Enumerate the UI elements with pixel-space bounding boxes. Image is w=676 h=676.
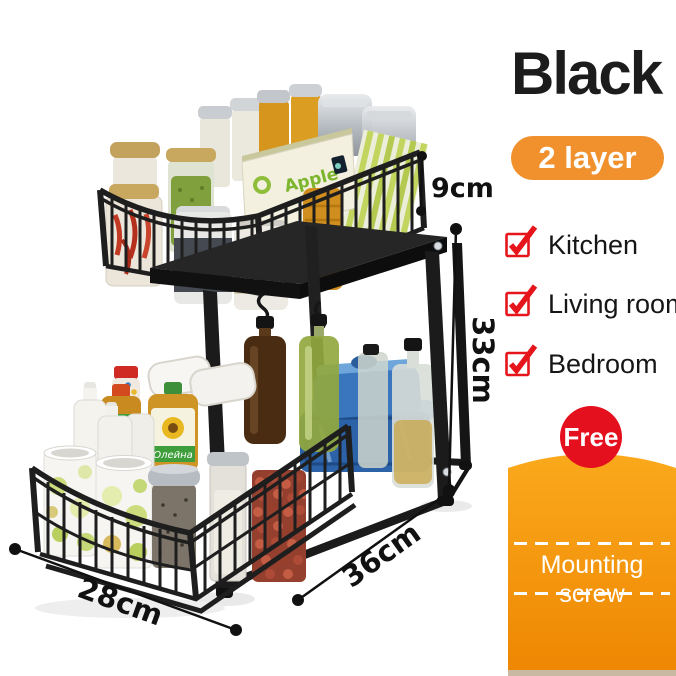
room-label: Living room bbox=[548, 289, 676, 320]
room-item-bedroom: Bedroom bbox=[505, 344, 658, 382]
dashed-divider bbox=[514, 592, 670, 595]
room-label: Kitchen bbox=[548, 230, 638, 261]
room-item-kitchen: Kitchen bbox=[505, 225, 638, 263]
room-item-living-room: Living room bbox=[505, 284, 676, 322]
dim-9cm-label: 9cm bbox=[431, 173, 494, 204]
checkbox-checked-icon bbox=[505, 225, 541, 261]
checkbox-checked-icon bbox=[505, 284, 541, 320]
free-item-label: Mounting screw bbox=[508, 551, 676, 609]
free-badge-label: Free bbox=[564, 422, 619, 453]
free-badge: Free bbox=[560, 406, 622, 468]
layer-badge: 2 layer bbox=[511, 136, 664, 180]
room-label: Bedroom bbox=[548, 349, 658, 380]
hanging-vinegar-bottle bbox=[299, 314, 339, 452]
product-photo: Apple bbox=[0, 0, 500, 676]
dashed-divider bbox=[514, 542, 670, 545]
dim-28cm-label: 28cm bbox=[73, 571, 167, 633]
layer-badge-label: 2 layer bbox=[538, 140, 636, 176]
dim-33cm-label: 33cm bbox=[466, 316, 500, 404]
free-gift-panel: Mounting screw bbox=[508, 440, 676, 676]
product-card: Apple bbox=[0, 0, 676, 676]
dim-9cm: 9cm bbox=[416, 151, 494, 216]
oil-label: Олейна bbox=[153, 450, 193, 461]
dim-33cm: 33cm bbox=[443, 223, 500, 496]
oil-bottle-2: Олейна bbox=[148, 382, 198, 472]
checkbox-checked-icon bbox=[505, 344, 541, 380]
color-title: Black bbox=[511, 44, 676, 104]
